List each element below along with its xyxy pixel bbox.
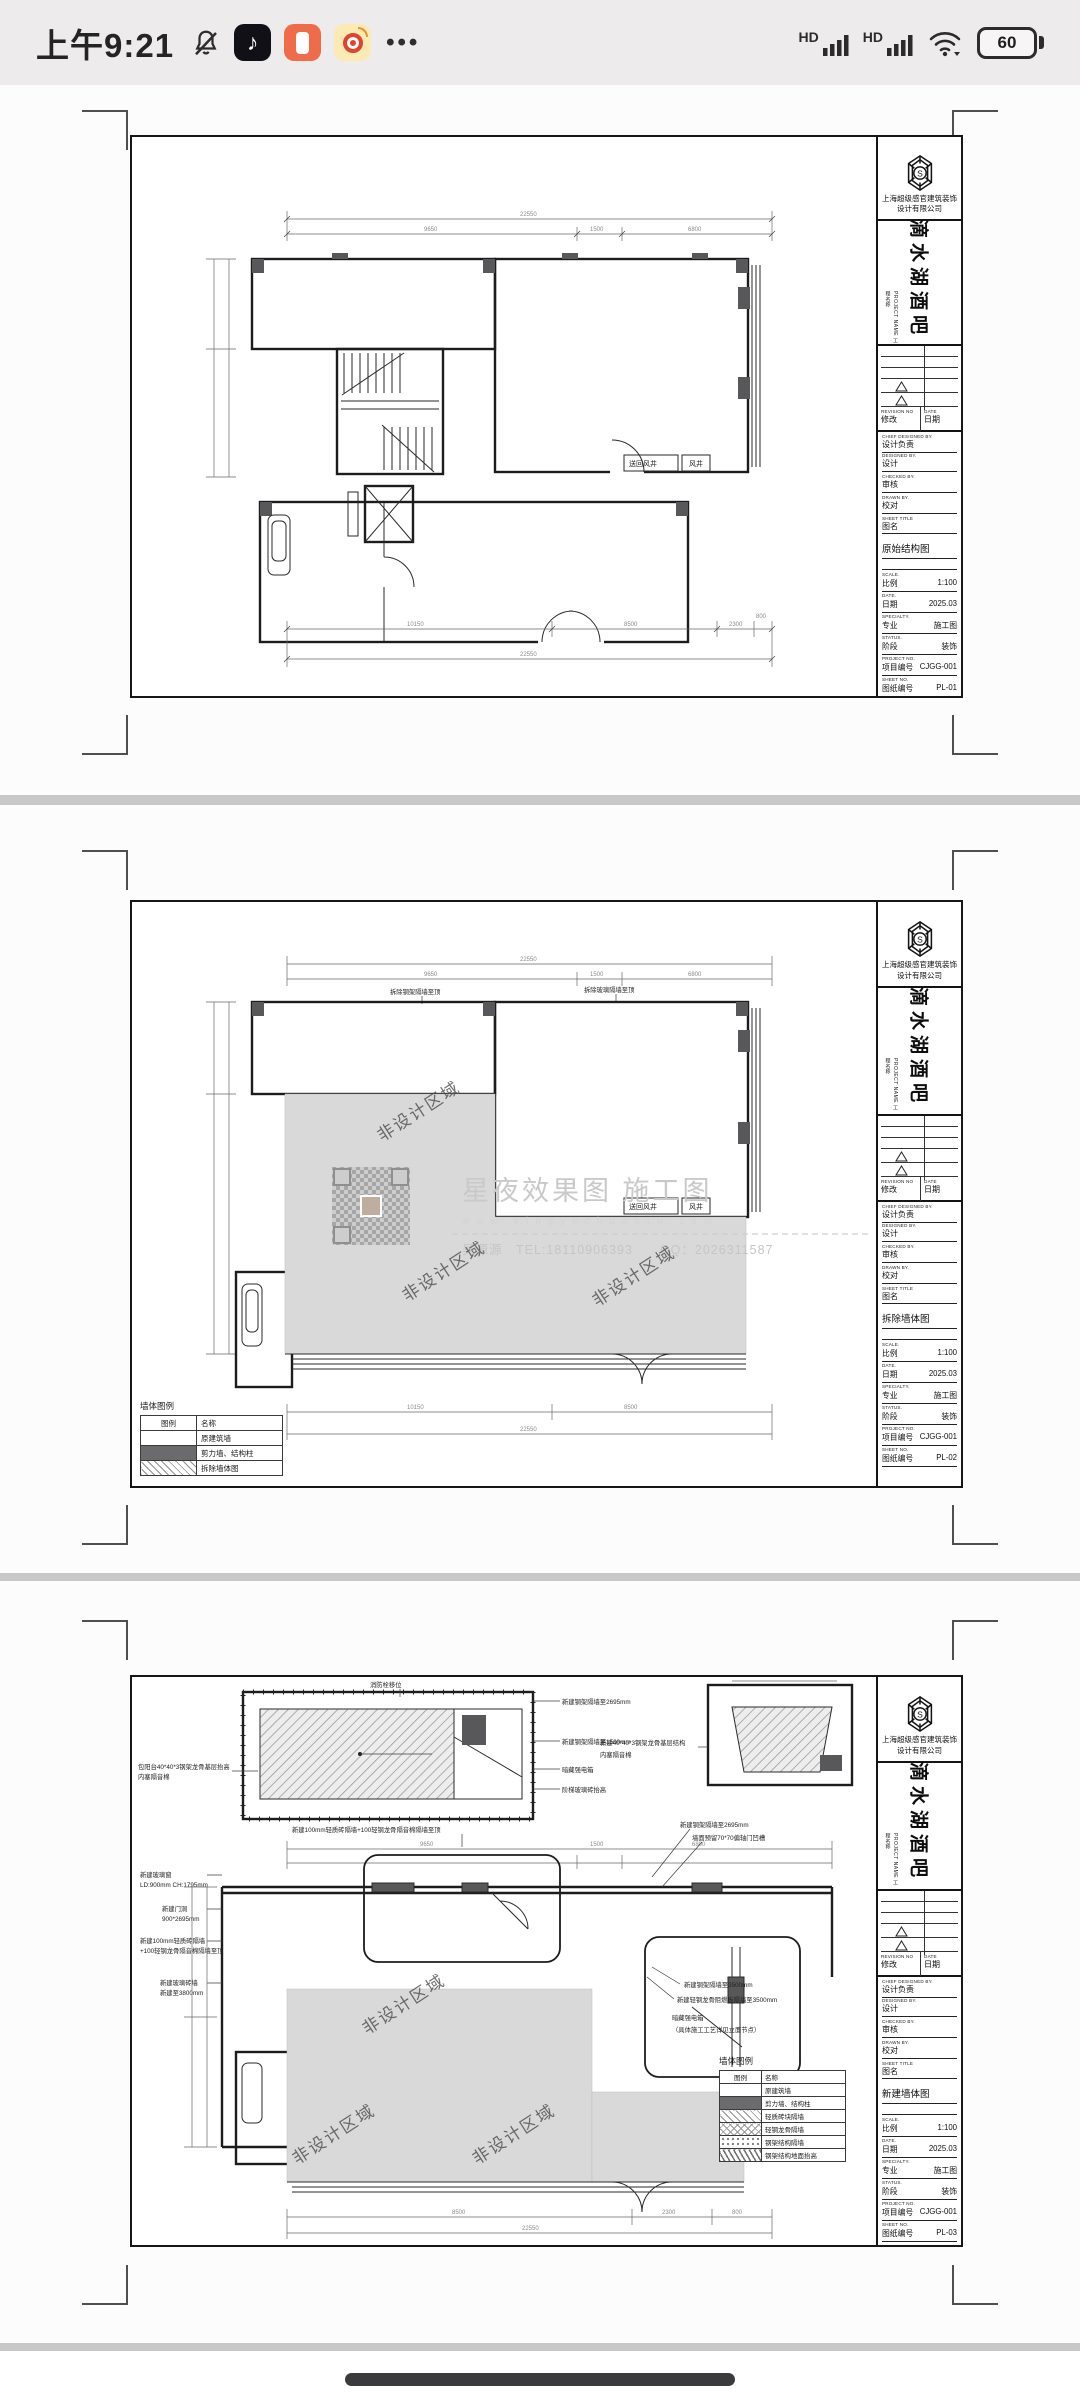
drawing-frame-3: 消防栓移位 新建钢架隔墙至2695mm 新建钢架隔墙至1500mm 暗藏强电箱 … [130, 1675, 963, 2247]
svg-text:新建玻璃砖墙: 新建玻璃砖墙 [160, 1978, 198, 1987]
sheet-title-cell: SHEET TITLE 图名 新建墙体图 [878, 2059, 961, 2115]
project-name-cell: 滴水湖酒吧 PROJECT NAME 工程名称 [878, 986, 961, 1114]
sheet-title: 原始结构图 [882, 541, 957, 559]
orange-app-icon [284, 24, 321, 61]
floor-plan-original-structure: 22550 9650 1500 6800 [132, 137, 880, 700]
svg-text:8500: 8500 [624, 1405, 638, 1411]
field-status: STATUS.阶段装饰 [878, 1403, 961, 1424]
field-chief-designer: CHIEF DESIGNED BY.设计负责 [878, 430, 961, 451]
field-status: STATUS.阶段装饰 [878, 2178, 961, 2199]
svg-text:S: S [917, 168, 923, 178]
svg-text:暗藏强电箱: 暗藏强电箱 [672, 2013, 703, 2022]
crop-mark [952, 2265, 998, 2305]
revision-table: REVISION NO修改 DATE日期 [878, 344, 961, 430]
sheet-title: 新建墙体图 [882, 2086, 957, 2104]
dimension-chain-left [206, 1002, 236, 1354]
more-notifications: ••• [386, 29, 420, 57]
svg-text:S: S [917, 934, 923, 944]
svg-text:吴源源 TEL:18110906393 QQ：202631: 吴源源 TEL:18110906393 QQ：2026311587 [462, 1243, 773, 1257]
svg-text:拆除玻璃隔墙至顶: 拆除玻璃隔墙至顶 [584, 985, 635, 994]
dimension-chain-bottom: 10150 8500 22550 [287, 1404, 772, 1440]
sheet-number: PL-03 [936, 2228, 957, 2239]
svg-text:新建玻璃窗: 新建玻璃窗 [140, 1870, 171, 1879]
drawing-sheet-2[interactable]: 22550 9650 1500 6800 拆除钢架隔墙至顶 拆除玻璃隔墙至顶 [0, 805, 1080, 1573]
svg-text:新建钢架隔墙至3500mm: 新建钢架隔墙至3500mm [684, 1980, 753, 1989]
svg-text:新建门洞: 新建门洞 [162, 1904, 187, 1913]
field-scale: SCALE.比例1:100 [878, 2115, 961, 2136]
field-date: DATE.日期2025.03 [878, 2136, 961, 2157]
signal-sim1: HD [799, 29, 851, 59]
field-sheet-no: SHEET NO.图纸编号PL-01 [878, 675, 961, 696]
svg-text:内塞隔音棉: 内塞隔音棉 [600, 1750, 631, 1759]
svg-text:9650: 9650 [424, 972, 438, 978]
field-sheet-no: SHEET NO.图纸编号PL-02 [878, 1445, 961, 1466]
non-design-region [287, 1989, 744, 2212]
crop-mark [952, 850, 998, 890]
svg-text:800: 800 [732, 2210, 743, 2216]
stairs [341, 353, 439, 472]
svg-text:新建40*40*3钢架龙骨基层结构: 新建40*40*3钢架龙骨基层结构 [600, 1738, 685, 1747]
weibo-app-icon [334, 24, 371, 61]
field-designer: DESIGNED BY.设计 [878, 451, 961, 472]
field-designer: DESIGNED BY.设计 [878, 1996, 961, 2017]
watermark-text: 星夜效果图 施工图 www.xingyechuantu.com 吴源源 TEL:… [452, 1176, 872, 1257]
svg-text:1500: 1500 [590, 1842, 604, 1848]
svg-text:风井: 风井 [689, 459, 703, 468]
project-name-label: PROJECT NAME 工程名称 [883, 1058, 898, 1114]
clock-time: 上午9:21 [36, 19, 174, 67]
sheet-number: PL-01 [936, 683, 957, 694]
field-drawn-by: DRAWN BY.校对 [878, 2038, 961, 2059]
field-status: STATUS.阶段装饰 [878, 633, 961, 654]
field-specialty: SPECIALTY.专业施工图 [878, 612, 961, 633]
field-designer: DESIGNED BY.设计 [878, 1221, 961, 1242]
svg-text:1500: 1500 [590, 227, 604, 233]
svg-text:S: S [917, 1709, 923, 1719]
field-date: DATE.日期2025.03 [878, 591, 961, 612]
svg-text:2300: 2300 [662, 2210, 676, 2216]
project-name-label: PROJECT NAME 工程名称 [883, 291, 898, 344]
field-scale: SCALE.比例1:100 [878, 570, 961, 591]
sheet-number: PL-02 [936, 1453, 957, 1464]
company-logo-icon: S [878, 902, 961, 960]
field-sheet-no: SHEET NO.图纸编号PL-03 [878, 2220, 961, 2241]
svg-text:8500: 8500 [624, 622, 638, 628]
revision-table: REVISION NO修改 DATE日期 [878, 1114, 961, 1200]
project-name: 滴水湖酒吧 [906, 987, 933, 1107]
svg-text:阶梯玻璃砖抬高: 阶梯玻璃砖抬高 [562, 1785, 606, 1794]
field-drawn-by: DRAWN BY.校对 [878, 493, 961, 514]
svg-text:800: 800 [756, 614, 767, 620]
svg-text:拆除钢架隔墙至顶: 拆除钢架隔墙至顶 [390, 987, 441, 996]
svg-text:新建100mm轻质砖隔墙: 新建100mm轻质砖隔墙 [140, 1936, 206, 1945]
svg-text:22550: 22550 [520, 957, 537, 963]
terrace-lines [285, 1354, 746, 1369]
field-project-no: PROJECT NO.项目编号CJGG-001 [878, 2199, 961, 2220]
svg-text:包阳台40*40*3钢架龙骨基层抬高: 包阳台40*40*3钢架龙骨基层抬高 [138, 1762, 230, 1771]
floor-plan-new-walls: 消防栓移位 新建钢架隔墙至2695mm 新建钢架隔墙至1500mm 暗藏强电箱 … [132, 1677, 880, 2249]
sheet-title-cell: SHEET TITLE 图名 拆除墙体图 [878, 1284, 961, 1340]
company-logo-icon: S [878, 1677, 961, 1735]
field-checker: CHECKED BY.审核 [878, 472, 961, 493]
title-block-3: S 上海超级感官建筑装饰设计有限公司 滴水湖酒吧 PROJECT NAME 工程… [876, 1677, 961, 2245]
svg-text:内塞隔音棉: 内塞隔音棉 [138, 1772, 169, 1781]
signal-sim2: HD [863, 29, 915, 59]
drawing-frame-2: 22550 9650 1500 6800 拆除钢架隔墙至顶 拆除玻璃隔墙至顶 [130, 900, 963, 1488]
mute-bell-icon [191, 28, 221, 58]
field-project-no: PROJECT NO.项目编号CJGG-001 [878, 654, 961, 675]
title-block-2: S 上海超级感官建筑装饰设计有限公司 滴水湖酒吧 PROJECT NAME 工程… [876, 902, 961, 1486]
walls [252, 259, 748, 642]
battery-percent: 60 [977, 27, 1037, 59]
balcony-detail [243, 1692, 533, 1819]
field-checker: CHECKED BY.审核 [878, 1242, 961, 1263]
crop-mark [952, 1505, 998, 1545]
status-bar: 上午9:21 ♪ ••• HD HD 60 [0, 0, 1080, 85]
svg-text:新建至3800mm: 新建至3800mm [160, 1988, 203, 1997]
crop-mark [82, 1620, 128, 1660]
field-checker: CHECKED BY.审核 [878, 2017, 961, 2038]
svg-text:消防栓移位: 消防栓移位 [370, 1680, 402, 1689]
qr-code-watermark [332, 1167, 410, 1245]
svg-text:新建钢架隔墙至2695mm: 新建钢架隔墙至2695mm [562, 1697, 631, 1706]
project-name: 滴水湖酒吧 [906, 1762, 933, 1882]
page-separator [0, 2343, 1080, 2351]
field-chief-designer: CHIEF DESIGNED BY.设计负责 [878, 1200, 961, 1221]
note-brick-top: 新建100mm轻质砖隔墙+100轻钢龙骨隔音棉隔墙至顶 [292, 1825, 441, 1834]
project-name-cell: 滴水湖酒吧 PROJECT NAME 工程名称 [878, 1761, 961, 1889]
home-indicator[interactable] [345, 2373, 735, 2386]
svg-text:暗藏强电箱: 暗藏强电箱 [562, 1765, 593, 1774]
elevator [348, 486, 413, 542]
project-name: 滴水湖酒吧 [906, 219, 933, 339]
drawing-sheet-1[interactable]: 22550 9650 1500 6800 [0, 85, 1080, 795]
page-separator [0, 795, 1080, 805]
wall-legend: 墙体图例 图例名称 原建筑墙 剪力墙、结构柱 轻质砖块隔墙 轻钢龙骨隔墙 钢架结… [719, 2055, 846, 2162]
title-block-1: S 上海超级感官建筑装饰设计有限公司 滴水湖酒吧 PROJECT NAME 工程… [876, 137, 961, 696]
company-name: 上海超级感官建筑装饰设计有限公司 [878, 1735, 961, 1761]
page-separator [0, 1573, 1080, 1581]
battery-indicator: 60 [977, 27, 1044, 59]
field-specialty: SPECIALTY.专业施工图 [878, 2157, 961, 2178]
wall-legend: 墙体图例 图例名称 原建筑墙 剪力墙、结构柱 拆除墙体图 [140, 1400, 283, 1476]
windows-and-fixtures [252, 253, 760, 642]
svg-text:900*2695mm: 900*2695mm [162, 1916, 199, 1923]
crop-mark [82, 2265, 128, 2305]
svg-text:2300: 2300 [729, 622, 743, 628]
tiktok-app-icon: ♪ [234, 24, 271, 61]
company-name: 上海超级感官建筑装饰设计有限公司 [878, 194, 961, 219]
svg-text:www.xingyechuantu.com: www.xingyechuantu.com [461, 1216, 719, 1227]
svg-text:新建钢架隔墙至2695mm: 新建钢架隔墙至2695mm [680, 1820, 749, 1829]
dimension-chain-left [206, 259, 236, 477]
crop-mark [82, 850, 128, 890]
left-notes: 新建玻璃窗 LD:900mm CH:1795mm 新建门洞 900*2695mm… [140, 1870, 224, 1997]
svg-text:（具体施工工艺详见立面节点）: （具体施工工艺详见立面节点） [672, 2025, 760, 2034]
corner-detail: 新建40*40*3钢架龙骨基层结构 内塞隔音棉 [600, 1681, 852, 1785]
dimension-chain-top: 22550 9650 1500 6800 [284, 211, 775, 241]
svg-text:10150: 10150 [407, 1405, 424, 1411]
svg-text:10150: 10150 [407, 622, 424, 628]
field-drawn-by: DRAWN BY.校对 [878, 1263, 961, 1284]
dimension-chain-bottom: 10150 8500 2300 800 22550 [284, 614, 775, 667]
svg-text:墙面预留70*70偏轴门凹槽: 墙面预留70*70偏轴门凹槽 [692, 1833, 766, 1842]
svg-text:星夜效果图 施工图: 星夜效果图 施工图 [462, 1176, 713, 1206]
project-name-cell: 滴水湖酒吧 PROJECT NAME 工程名称 [878, 219, 961, 344]
sheet-title: 拆除墙体图 [882, 1311, 957, 1329]
svg-text:22550: 22550 [520, 212, 537, 218]
field-project-no: PROJECT NO.项目编号CJGG-001 [878, 1424, 961, 1445]
dimension-chain-left [184, 1887, 217, 2147]
crop-mark [82, 110, 128, 150]
company-name: 上海超级感官建筑装饰设计有限公司 [878, 960, 961, 986]
field-chief-designer: CHIEF DESIGNED BY.设计负责 [878, 1975, 961, 1996]
field-scale: SCALE.比例1:100 [878, 1340, 961, 1361]
svg-text:6800: 6800 [688, 972, 702, 978]
svg-text:22550: 22550 [520, 652, 537, 658]
project-name-label: PROJECT NAME 工程名称 [883, 1833, 898, 1889]
sheet-title-cell: SHEET TITLE 图名 原始结构图 [878, 514, 961, 570]
wifi-icon [927, 27, 963, 59]
dimension-chain-top: 22550 9650 1500 6800 [287, 956, 772, 986]
company-logo-icon: S [878, 137, 961, 194]
svg-text:9650: 9650 [420, 1842, 434, 1848]
svg-text:LD:900mm CH:1795mm: LD:900mm CH:1795mm [140, 1882, 208, 1889]
dimension-chain-bottom: 8500 2300 800 22550 [287, 2209, 772, 2239]
svg-text:+100轻钢龙骨隔音棉隔墙至顶: +100轻钢龙骨隔音棉隔墙至顶 [140, 1946, 224, 1955]
field-specialty: SPECIALTY.专业施工图 [878, 1382, 961, 1403]
revision-table: REVISION NO修改 DATE日期 [878, 1889, 961, 1975]
svg-text:新建轻钢龙骨阻燃板隔墙至3500mm: 新建轻钢龙骨阻燃板隔墙至3500mm [677, 1995, 777, 2004]
drawing-sheet-3[interactable]: 消防栓移位 新建钢架隔墙至2695mm 新建钢架隔墙至1500mm 暗藏强电箱 … [0, 1581, 1080, 2343]
gesture-nav-area [0, 2351, 1080, 2400]
drawing-frame-1: 22550 9650 1500 6800 [130, 135, 963, 698]
svg-text:9650: 9650 [424, 227, 438, 233]
svg-text:1500: 1500 [590, 972, 604, 978]
svg-text:22550: 22550 [522, 2226, 539, 2232]
svg-text:8500: 8500 [452, 2210, 466, 2216]
svg-text:6800: 6800 [688, 227, 702, 233]
field-date: DATE.日期2025.03 [878, 1361, 961, 1382]
svg-text:22550: 22550 [520, 1427, 537, 1433]
crop-mark [82, 1505, 128, 1545]
crop-mark [952, 715, 998, 755]
crop-mark [952, 1620, 998, 1660]
crop-mark [82, 715, 128, 755]
svg-text:送回风井: 送回风井 [629, 459, 657, 468]
